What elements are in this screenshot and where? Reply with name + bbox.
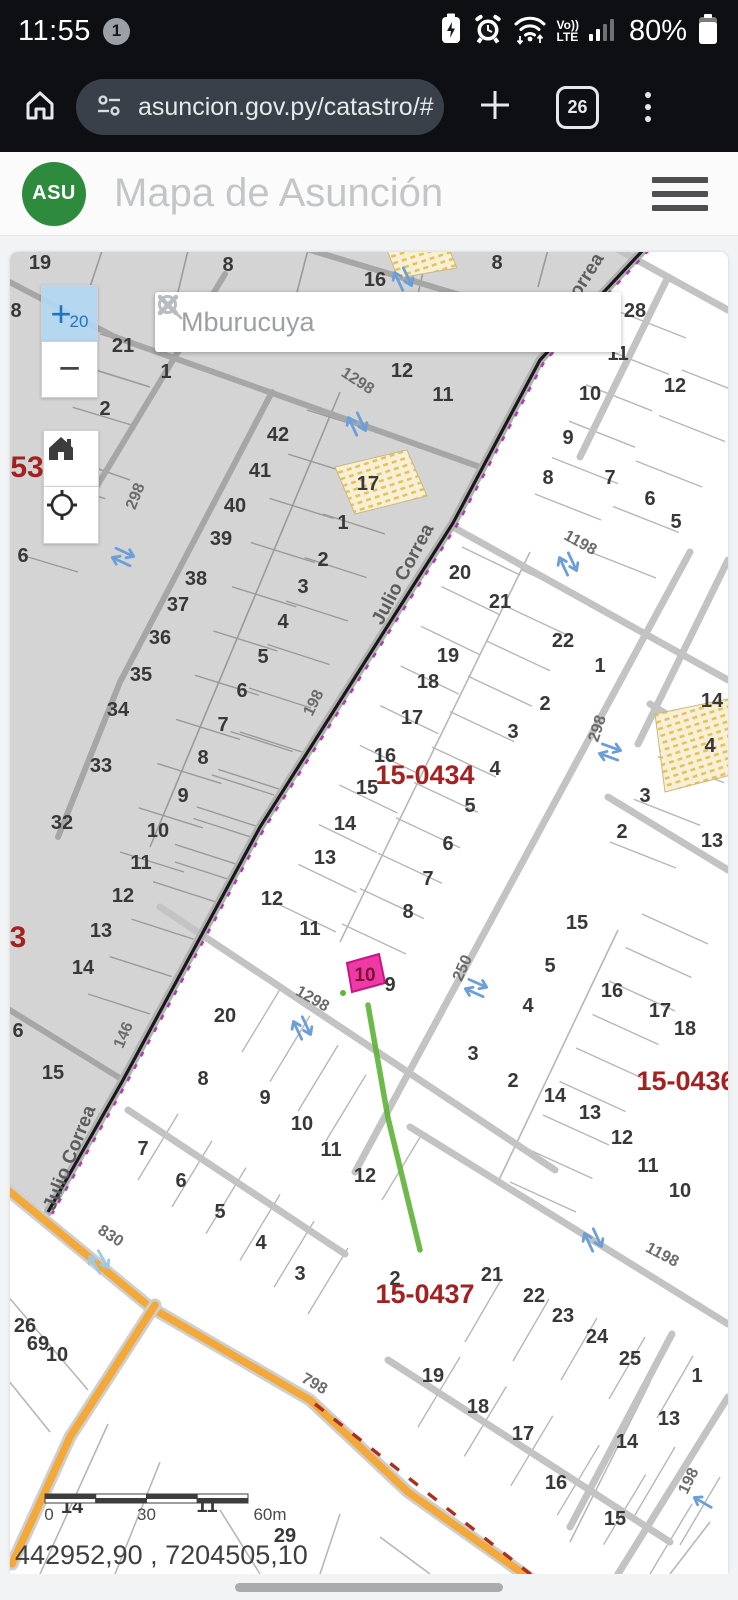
parcel-number: 25: [619, 1348, 641, 1370]
app-header: ASU Mapa de Asunción: [0, 152, 738, 236]
parcel-number: 10: [579, 383, 601, 405]
parcel-number: 12: [391, 360, 413, 382]
tab-switcher[interactable]: 26: [556, 86, 599, 129]
zone-label: 3: [10, 921, 26, 954]
parcel-number: 8: [402, 901, 413, 923]
notification-badge: 1: [103, 18, 130, 45]
url-bar[interactable]: asuncion.gov.py/catastro/#: [76, 79, 444, 135]
parcel-number: 1: [691, 1365, 702, 1387]
screen: { "status_bar": { "time": "11:55", "noti…: [0, 0, 738, 1600]
parcel-number: 18: [674, 1018, 696, 1040]
battery-percent: 80%: [629, 15, 687, 48]
parcel-number: 22: [552, 630, 574, 652]
parcel-number: 3: [507, 721, 518, 743]
locate-button[interactable]: [43, 486, 99, 544]
parcel-number: 2: [317, 549, 328, 571]
parcel-number: 32: [51, 812, 73, 834]
parcel-number: 10: [291, 1113, 313, 1135]
parcel-number: 9: [384, 974, 395, 996]
parcel-number: 19: [422, 1365, 444, 1387]
parcel-number: 2: [616, 821, 627, 843]
parcel-number: 38: [185, 568, 207, 590]
scalebar-label: 30: [137, 1505, 156, 1524]
battery-icon: [696, 12, 720, 51]
alarm-icon: [473, 13, 503, 50]
scalebar-segment: [96, 1494, 147, 1499]
parcel-number: 4: [704, 735, 716, 757]
site-settings-icon[interactable]: [94, 90, 124, 125]
scalebar-segment: [45, 1494, 96, 1499]
parcel-number: 21: [481, 1264, 503, 1286]
parcel-number: 34: [107, 699, 130, 721]
parcel-number: 3: [294, 1263, 305, 1285]
zone-label: 15-0437: [375, 1279, 474, 1309]
zone-label: 53: [10, 451, 43, 484]
parcel-number: 21: [489, 591, 511, 613]
parcel-number: 13: [579, 1102, 601, 1124]
selected-parcel-number: 10: [354, 965, 375, 986]
parcel-number: 1: [337, 512, 348, 534]
parcel-number: 16: [364, 269, 386, 291]
zoom-out-button[interactable]: −: [41, 341, 98, 398]
parcel-number: 14: [72, 957, 95, 979]
parcel-number: 19: [29, 252, 51, 274]
coordinates-readout: 442952,90 , 7204505,10: [15, 1540, 308, 1570]
gesture-nav-pill[interactable]: [235, 1583, 503, 1592]
parcel-number: 14: [701, 690, 724, 712]
parcel-number: 13: [314, 847, 336, 869]
status-bar: 11:55 1 Vo)) LTE 80%: [0, 0, 738, 62]
parcel-number: 4: [277, 611, 289, 633]
parcel-number: 11: [432, 384, 453, 406]
parcel-number: 20: [214, 1005, 236, 1027]
parcel-number: 14: [616, 1431, 639, 1453]
green-dot: [340, 990, 346, 996]
parcel-number: 17: [512, 1423, 534, 1445]
parcel-number: 10: [669, 1180, 691, 1202]
parcel-number: 11: [637, 1155, 658, 1177]
parcel-number: 14: [544, 1085, 567, 1107]
parcel-number: 5: [544, 955, 555, 977]
wifi-icon: [512, 12, 548, 51]
parcel-number: 33: [90, 755, 112, 777]
parcel-number: 2: [539, 693, 550, 715]
minus-icon: −: [58, 348, 80, 391]
zoom-in-button[interactable]: + 20: [41, 285, 98, 342]
volte-indicator: Vo)) LTE: [557, 19, 579, 43]
parcel-number: 8: [491, 252, 502, 274]
scalebar-segment: [197, 1499, 248, 1504]
map-viewport[interactable]: 1981688211212114241174013923833743653563…: [10, 252, 728, 1574]
parcel-number: 17: [401, 707, 423, 729]
search-input[interactable]: Mburucuya: [181, 307, 591, 338]
page-title: Mapa de Asunción: [114, 171, 443, 216]
parcel-number: 13: [701, 830, 723, 852]
zone-label: 15-0436: [636, 1066, 728, 1096]
parcel-number: 39: [210, 528, 232, 550]
asu-logo: ASU: [22, 162, 86, 226]
parcel-number: 1: [594, 655, 605, 677]
parcel-number: 5: [670, 511, 681, 533]
parcel-number: 11: [130, 852, 151, 874]
parcel-number: 9: [562, 427, 573, 449]
parcel-number: 17: [357, 473, 379, 495]
parcel-number: 3: [297, 576, 308, 598]
parcel-number: 12: [611, 1127, 633, 1149]
scalebar-label: 0: [44, 1505, 53, 1524]
parcel-number: 6: [175, 1170, 186, 1192]
hamburger-menu-icon[interactable]: [644, 169, 716, 219]
parcel-number: 15: [604, 1508, 626, 1530]
map-home-button[interactable]: [43, 430, 99, 487]
parcel-number: 20: [449, 562, 471, 584]
parcel-number: 7: [217, 714, 228, 736]
parcel-number: 15: [42, 1062, 64, 1084]
parcel-number: 35: [130, 664, 152, 686]
zone-label: 15-0434: [375, 760, 474, 790]
parcel-number: 4: [522, 995, 534, 1017]
parcel-number: 18: [417, 671, 439, 693]
scalebar-segment: [45, 1499, 96, 1504]
parcel-number: 5: [214, 1201, 225, 1223]
parcel-number: 11: [320, 1139, 341, 1161]
parcel-number: 4: [255, 1232, 267, 1254]
parcel-number: 8: [10, 300, 21, 322]
scalebar-segment: [147, 1499, 198, 1504]
parcel-number: 7: [422, 868, 433, 890]
scalebar-segment: [197, 1494, 248, 1499]
parcel-number: 24: [586, 1326, 609, 1348]
parcel-number: 13: [90, 920, 112, 942]
parcel-number: 10: [46, 1344, 68, 1366]
scalebar-segment: [147, 1494, 198, 1499]
parcel-number: 18: [467, 1396, 489, 1418]
parcel-number: 7: [604, 467, 615, 489]
parcel-number: 13: [658, 1408, 680, 1430]
parcel-number: 3: [639, 785, 650, 807]
parcel-number: 6: [236, 680, 247, 702]
parcel-number: 28: [624, 300, 646, 322]
parcel-number: 12: [261, 888, 283, 910]
parcel-number: 2: [99, 398, 110, 420]
parcel-number: 9: [259, 1087, 270, 1109]
parcel-number: 2: [507, 1070, 518, 1092]
parcel-number: 42: [267, 424, 289, 446]
parcel-number: 10: [147, 820, 169, 842]
parcel-number: 8: [197, 747, 208, 769]
parcel-number: 17: [649, 1000, 671, 1022]
gesture-nav-area: [0, 1574, 738, 1600]
cadastral-map[interactable]: 1981688211212114241174013923833743653563…: [10, 252, 728, 1574]
parcel-number: 40: [224, 495, 246, 517]
browser-toolbar: asuncion.gov.py/catastro/# 26: [0, 62, 738, 152]
scalebar-segment: [96, 1499, 147, 1504]
plus-icon: +: [51, 296, 72, 332]
zoom-level: 20: [70, 312, 89, 332]
parcel-number: 21: [112, 335, 134, 357]
parcel-number: 16: [545, 1472, 567, 1494]
tab-count: 26: [567, 97, 587, 118]
parcel-number: 9: [177, 785, 188, 807]
parcel-number: 7: [137, 1138, 148, 1160]
parcel-number: 41: [249, 460, 271, 482]
url-text: asuncion.gov.py/catastro/#: [138, 93, 434, 122]
parcel-number: 5: [257, 646, 268, 668]
parcel-number: 6: [442, 833, 453, 855]
parcel-number: 11: [299, 918, 320, 940]
parcel-number: 23: [552, 1305, 574, 1327]
battery-saver-icon: [438, 12, 464, 51]
clock: 11:55: [18, 15, 91, 48]
parcel-number: 36: [149, 627, 171, 649]
new-tab-icon[interactable]: [472, 85, 518, 130]
parcel-number: 6: [644, 488, 655, 510]
parcel-number: 6: [17, 545, 28, 567]
parcel-number: 8: [197, 1068, 208, 1090]
parcel-number: 8: [222, 254, 233, 276]
parcel-number: 5: [464, 795, 475, 817]
parcel-number: 37: [167, 594, 189, 616]
signal-icon: [588, 14, 618, 49]
parcel-number: 14: [334, 813, 357, 835]
home-icon[interactable]: [20, 85, 60, 130]
parcel-number: 3: [467, 1043, 478, 1065]
parcel-number: 1: [160, 361, 171, 383]
scalebar-label: 60m: [253, 1505, 286, 1524]
parcel-number: 22: [523, 1285, 545, 1307]
parcel-number: 15: [566, 912, 588, 934]
menu-kebab-icon[interactable]: [639, 86, 657, 128]
parcel-number: 12: [112, 885, 134, 907]
parcel-number: 6: [12, 1020, 23, 1042]
parcel-number: 19: [437, 645, 459, 667]
parcel-number: 4: [489, 758, 501, 780]
parcel-number: 16: [601, 980, 623, 1002]
search-box[interactable]: Mburucuya: [155, 292, 621, 352]
parcel-number: 12: [354, 1165, 376, 1187]
parcel-number: 12: [664, 375, 686, 397]
parcel-number: 8: [542, 467, 553, 489]
